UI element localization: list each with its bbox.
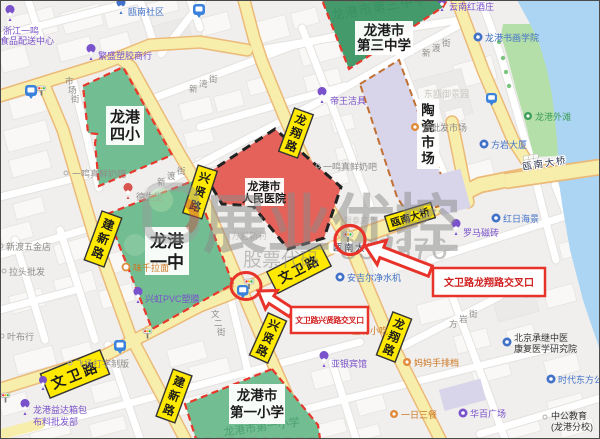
svg-text:龙港: 龙港 (109, 108, 141, 126)
svg-text:新: 新 (422, 48, 431, 58)
svg-text:一鸣真鲜奶吧: 一鸣真鲜奶吧 (72, 168, 126, 179)
svg-text:飞扬打字制版: 飞扬打字制版 (75, 358, 129, 369)
svg-text:瓯南社区: 瓯南社区 (128, 6, 164, 17)
svg-text:(龙港分校): (龙港分校) (551, 421, 593, 432)
svg-text:四小: 四小 (110, 126, 140, 143)
svg-text:味千拉面: 味千拉面 (133, 262, 169, 273)
svg-text:第三中学: 第三中学 (357, 37, 411, 53)
svg-text:文卫路龙翔路交叉口: 文卫路龙翔路交叉口 (444, 276, 534, 289)
svg-text:场: 场 (421, 151, 435, 166)
svg-text:华百广场: 华百广场 (470, 408, 506, 419)
svg-text:拉头批发: 拉头批发 (9, 266, 45, 277)
svg-text:叶布行: 叶布行 (7, 331, 34, 342)
svg-text:布料批发部: 布料批发部 (33, 416, 78, 427)
svg-text:街: 街 (177, 166, 186, 176)
svg-text:中公教育: 中公教育 (551, 410, 587, 421)
svg-text:兴虹PVC塑膜: 兴虹PVC塑膜 (145, 294, 200, 304)
svg-text:街: 街 (442, 38, 451, 48)
svg-text:湾: 湾 (199, 79, 208, 89)
svg-text:龙港益达箱包: 龙港益达箱包 (33, 404, 87, 415)
svg-text:浙江一鸣: 浙江一鸣 (3, 25, 39, 36)
svg-text:时代东方公: 时代东方公 (558, 374, 600, 385)
svg-text:食品配送中心: 食品配送中心 (0, 35, 54, 46)
svg-text:街: 街 (469, 309, 478, 319)
svg-text:康复医学研究院: 康复医学研究院 (514, 343, 577, 354)
svg-text:安吉尔净水机: 安吉尔净水机 (347, 272, 401, 283)
svg-text:云南红酒庄: 云南红酒庄 (449, 1, 494, 12)
svg-text:妈妈手排档: 妈妈手排档 (414, 357, 459, 368)
svg-text:岩: 岩 (459, 314, 468, 324)
svg-text:街: 街 (209, 74, 218, 84)
svg-text:渡: 渡 (432, 43, 441, 53)
svg-text:渡: 渡 (167, 171, 176, 181)
svg-text:东瓯御景园: 东瓯御景园 (424, 88, 469, 99)
svg-text:龙港外滩: 龙港外滩 (535, 111, 571, 122)
svg-text:文卫路兴贤路交叉口: 文卫路兴贤路交叉口 (295, 315, 364, 325)
svg-text:新: 新 (189, 84, 198, 94)
svg-text:帝王洁具: 帝王洁具 (330, 95, 366, 106)
svg-text:瓷批发市场: 瓷批发市场 (422, 122, 467, 133)
svg-text:市: 市 (421, 134, 435, 150)
svg-text:街: 街 (217, 327, 226, 337)
svg-text:罗马磁砖: 罗马磁砖 (463, 227, 499, 238)
svg-text:陶: 陶 (421, 102, 435, 118)
svg-text:方: 方 (449, 319, 458, 329)
svg-text:龙港市: 龙港市 (363, 22, 405, 38)
svg-text:街: 街 (71, 94, 80, 104)
svg-text:方岩大厦: 方岩大厦 (491, 139, 527, 150)
svg-text:龙港书画学院: 龙港书画学院 (485, 32, 539, 43)
svg-text:繁盛塑胶商行: 繁盛塑胶商行 (98, 50, 152, 61)
svg-text:股票代码: 股票代码 (243, 249, 319, 271)
svg-text:红日海景: 红日海景 (503, 213, 539, 224)
svg-text:亚银宾馆: 亚银宾馆 (331, 358, 367, 369)
svg-text:新渡五金店: 新渡五金店 (6, 241, 51, 252)
svg-text:一日三餐: 一日三餐 (401, 409, 437, 420)
svg-text:一鸣真鲜奶吧: 一鸣真鲜奶吧 (323, 161, 377, 172)
svg-text:第一小学: 第一小学 (230, 404, 284, 420)
svg-text:北京承继中医: 北京承继中医 (514, 332, 568, 343)
svg-text:龙港市: 龙港市 (236, 387, 278, 403)
